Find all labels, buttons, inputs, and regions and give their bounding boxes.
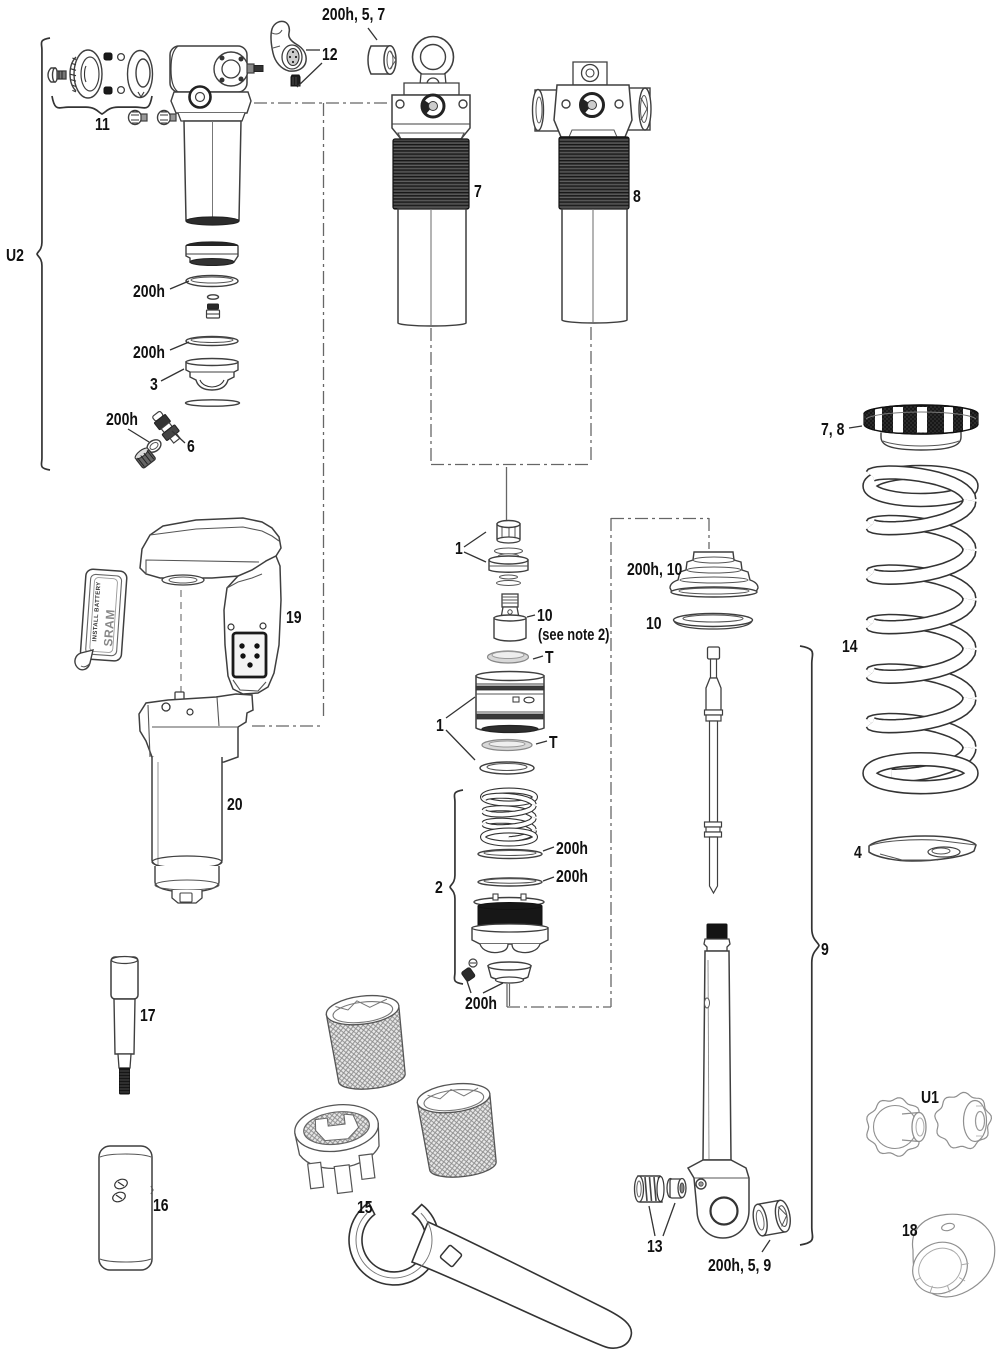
- svg-text:6: 6: [187, 436, 195, 456]
- svg-text:200h, 10: 200h, 10: [627, 559, 682, 579]
- svg-text:7, 8: 7, 8: [821, 419, 844, 439]
- svg-text:200h: 200h: [106, 409, 138, 429]
- svg-text:2: 2: [435, 877, 443, 897]
- svg-text:11: 11: [95, 114, 110, 134]
- svg-text:SRAM: SRAM: [101, 609, 118, 647]
- svg-text:13: 13: [647, 1236, 663, 1256]
- svg-text:200h: 200h: [133, 281, 165, 301]
- svg-text:200h: 200h: [465, 993, 497, 1013]
- svg-text:4: 4: [854, 842, 862, 862]
- svg-text:200h: 200h: [556, 838, 588, 858]
- svg-text:200h, 5, 7: 200h, 5, 7: [322, 4, 385, 24]
- svg-text:3: 3: [150, 374, 158, 394]
- svg-text:1: 1: [436, 715, 444, 735]
- svg-text:7: 7: [474, 181, 482, 201]
- svg-text:16: 16: [153, 1195, 169, 1215]
- svg-text:19: 19: [286, 607, 302, 627]
- svg-text:1: 1: [455, 538, 463, 558]
- svg-text:T: T: [549, 732, 558, 752]
- svg-text:18: 18: [902, 1220, 918, 1240]
- svg-text:12: 12: [322, 44, 338, 64]
- svg-text:U2: U2: [6, 245, 24, 265]
- svg-text:10: 10: [646, 613, 662, 633]
- svg-text:(see note 2): (see note 2): [538, 627, 610, 645]
- svg-text:200h: 200h: [556, 866, 588, 886]
- svg-text:15: 15: [357, 1197, 373, 1217]
- svg-text:U1: U1: [921, 1087, 939, 1107]
- svg-text:10: 10: [537, 605, 553, 625]
- svg-text:20: 20: [227, 794, 243, 814]
- svg-text:8: 8: [633, 186, 641, 206]
- svg-text:200h: 200h: [133, 342, 165, 362]
- svg-text:T: T: [545, 647, 554, 667]
- svg-text:14: 14: [842, 636, 858, 656]
- svg-text:200h, 5, 9: 200h, 5, 9: [708, 1255, 771, 1275]
- svg-text:17: 17: [140, 1005, 156, 1025]
- svg-text:9: 9: [821, 939, 829, 959]
